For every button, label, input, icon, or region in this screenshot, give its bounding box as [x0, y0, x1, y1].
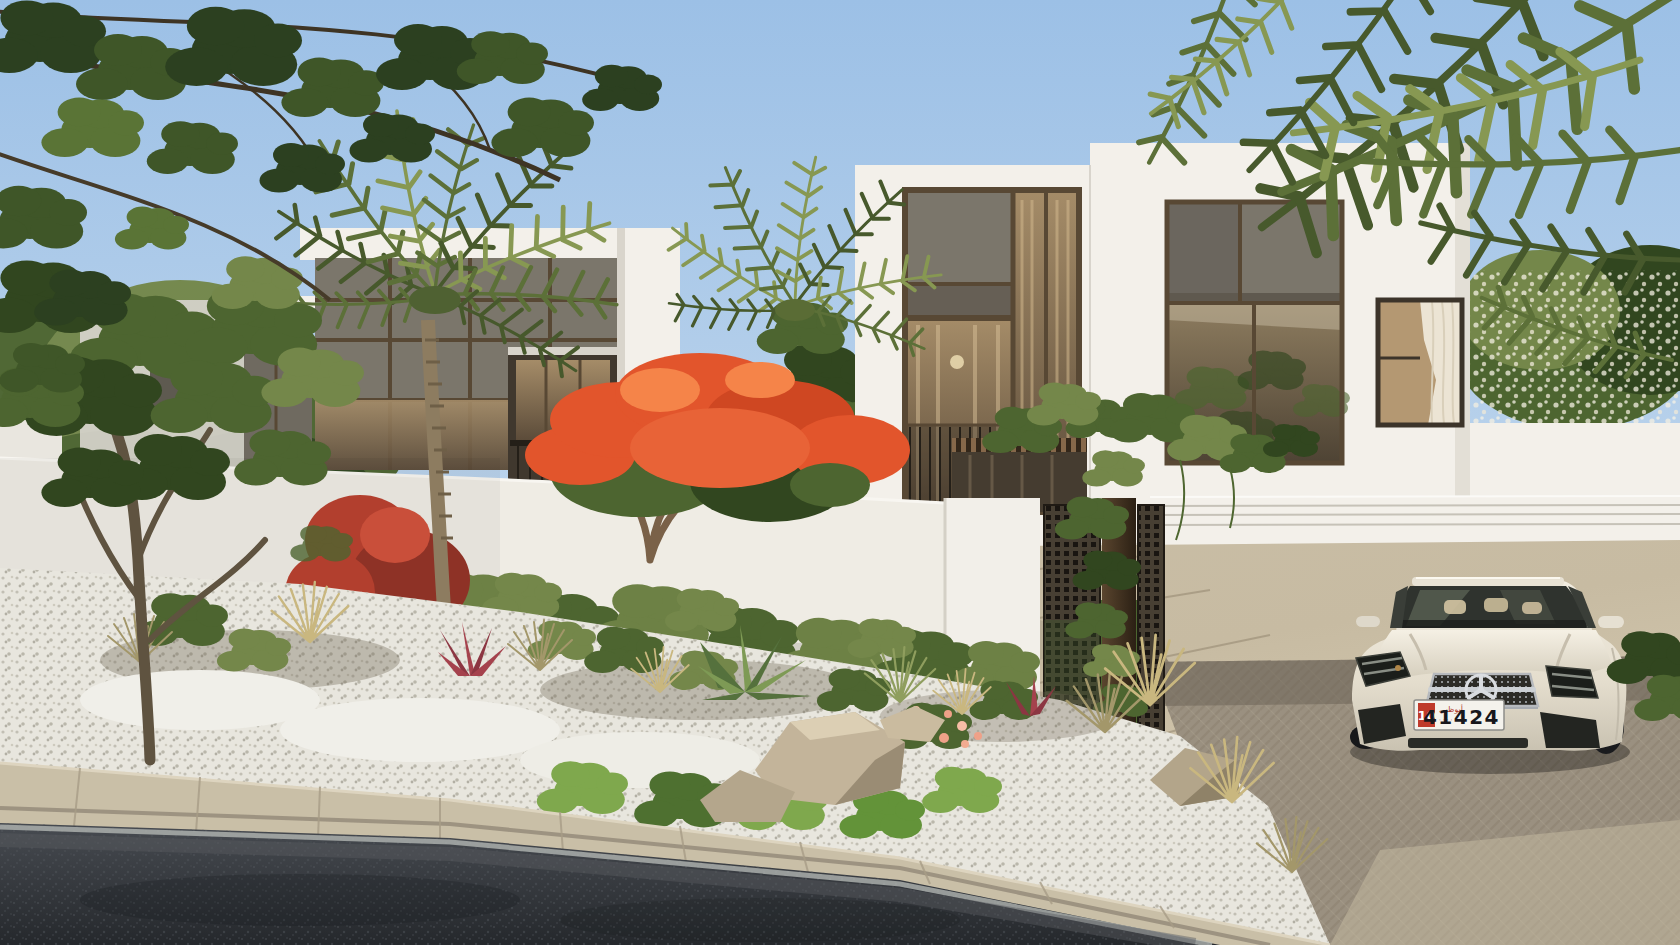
plate-number: 41424: [1423, 705, 1500, 729]
license-plate: 10 أبوظبي · · · · · 41424: [1414, 700, 1504, 730]
villa-exterior-rendering: 10 أبوظبي · · · · · 41424: [0, 0, 1680, 945]
curtain-window: [1378, 300, 1462, 425]
rendered-photo: 10 أبوظبي · · · · · 41424: [0, 0, 1680, 945]
white-flower-tree: [1455, 245, 1680, 430]
car-headlight-right: [1546, 666, 1598, 698]
gate-mesh-panel-2: [1138, 505, 1164, 763]
